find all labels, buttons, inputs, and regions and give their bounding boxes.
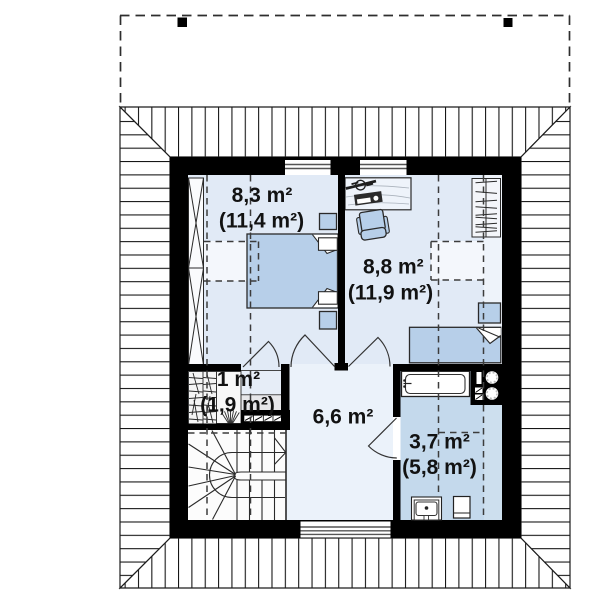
svg-text:(5,8 m²): (5,8 m²)	[402, 456, 477, 479]
svg-text:8,8 m²: 8,8 m²	[363, 256, 424, 279]
svg-text:6,6 m²: 6,6 m²	[313, 406, 374, 429]
svg-text:(11,4 m²): (11,4 m²)	[219, 209, 304, 232]
svg-text:1 m²: 1 m²	[217, 368, 260, 391]
svg-text:3,7 m²: 3,7 m²	[409, 430, 470, 453]
svg-text:(1,9 m²): (1,9 m²)	[200, 394, 275, 417]
svg-text:8,3 m²: 8,3 m²	[232, 184, 293, 207]
svg-text:(11,9 m²): (11,9 m²)	[348, 282, 433, 305]
